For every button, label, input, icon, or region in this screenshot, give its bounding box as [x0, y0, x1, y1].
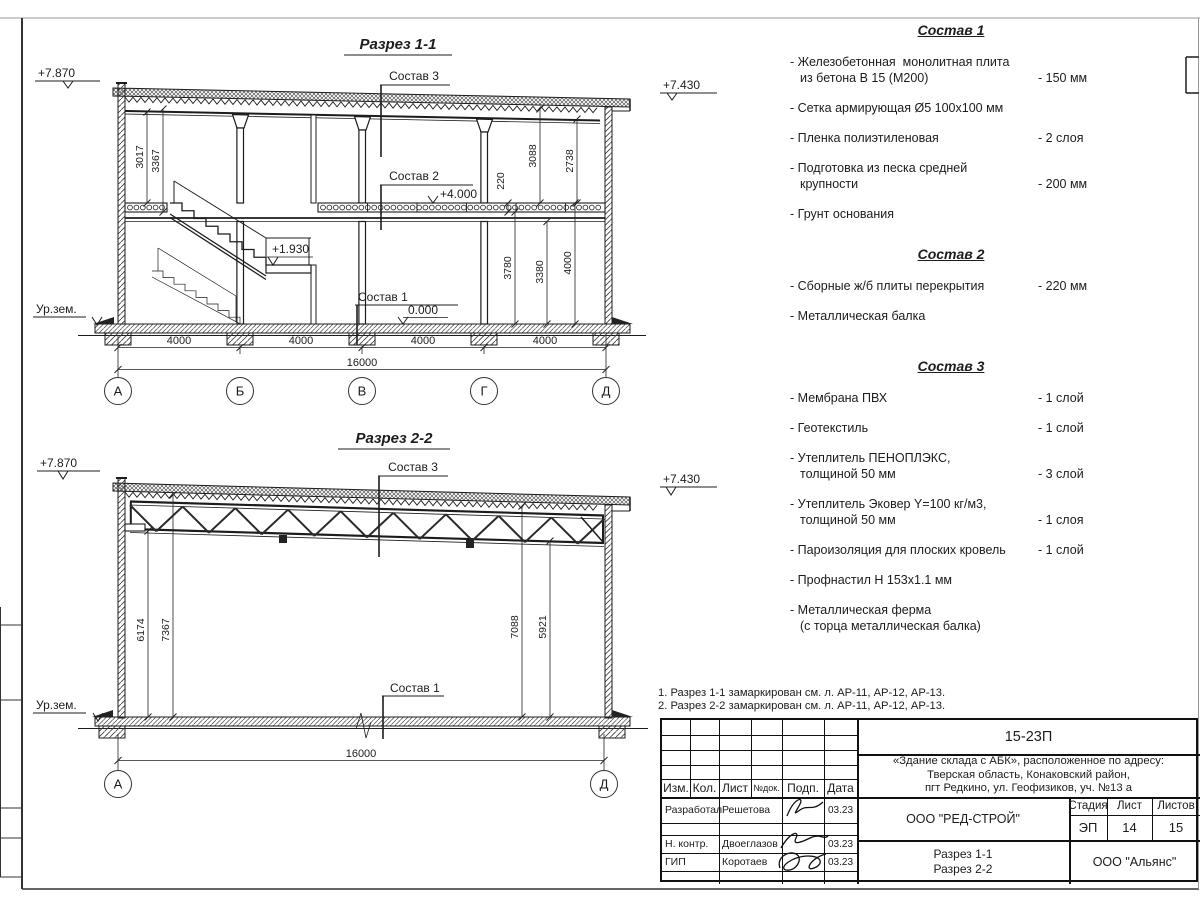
svg-text:4000: 4000 [411, 335, 435, 347]
col-data: Дата [824, 779, 857, 797]
list-item: - Подготовка из песка средней крупности-… [790, 160, 1112, 192]
svg-text:+7.870: +7.870 [38, 66, 75, 80]
svg-text:Состав 3: Состав 3 [388, 460, 438, 474]
left-margin-table [0, 607, 22, 877]
composition-list-1: Состав 1 - Железобетонная монолитная пли… [790, 22, 1112, 236]
svg-text:7367: 7367 [160, 618, 172, 642]
svg-text:220: 220 [495, 172, 507, 190]
svg-text:3088: 3088 [527, 144, 539, 168]
notes: 1. Разрез 1-1 замаркирован см. л. АР-11,… [658, 687, 945, 713]
svg-text:Состав 1: Состав 1 [390, 681, 440, 695]
title-block: Изм. Кол. Лист №док. Подп. Дата Разработ… [660, 718, 1198, 882]
steel-truss [125, 502, 604, 549]
row-date: 03.23 [824, 797, 857, 823]
signature [774, 844, 830, 878]
svg-text:+4.000: +4.000 [440, 187, 477, 201]
row-name: Двоеглазов [722, 835, 782, 853]
object-address: «Здание склада с АБК», расположенное по … [857, 754, 1200, 797]
sheets-label: Листов [1152, 797, 1200, 815]
ground-level-label: Ур.зем. [33, 302, 102, 325]
col-ndok: №док. [751, 779, 782, 797]
list-item: - Мембрана ПВХ- 1 слой [790, 390, 1112, 406]
ground-level-label-2: Ур.зем. [33, 698, 103, 721]
elevation-left: +7.870 [35, 66, 100, 88]
list-item: - Железобетонная монолитная плита из бет… [790, 54, 1112, 86]
svg-text:+7.870: +7.870 [40, 456, 77, 470]
composition-list-3: Состав 3 - Мембрана ПВХ- 1 слой - Геотек… [790, 358, 1112, 648]
list-item: - Сборные ж/б плиты перекрытия- 220 мм [790, 278, 1112, 294]
list-item: - Грунт основания [790, 206, 1112, 222]
row-role: Н. контр. [665, 835, 719, 853]
sheets-total: 15 [1152, 815, 1200, 840]
list-item: - Геотекстиль- 1 слой [790, 420, 1112, 436]
svg-text:Ур.зем.: Ур.зем. [36, 698, 77, 712]
svg-text:+7.430: +7.430 [663, 78, 700, 92]
col-kol: Кол. [690, 779, 719, 797]
list-item: - Утеплитель Эковер Y=100 кг/м3, толщино… [790, 496, 1112, 528]
svg-text:Состав 1: Состав 1 [358, 290, 408, 304]
elevation-right-2: +7.430 [660, 472, 717, 495]
svg-text:3017: 3017 [134, 145, 146, 169]
elevation-left-2: +7.870 [37, 456, 100, 479]
list-item: - Профнастил Н 153х1.1 мм [790, 572, 1112, 588]
corner-stamp-box [1186, 57, 1199, 93]
section2-axis-bubbles: А Д [105, 771, 618, 798]
svg-text:А: А [114, 384, 123, 399]
svg-text:Г: Г [480, 384, 487, 399]
sheet-number: 14 [1107, 815, 1152, 840]
svg-text:4000: 4000 [562, 251, 574, 275]
drawing-titles: Разрез 1-1 Разрез 2-2 [857, 840, 1069, 884]
svg-text:+1.930: +1.930 [272, 242, 309, 256]
svg-text:7088: 7088 [509, 615, 521, 639]
composition-list-2: Состав 2 - Сборные ж/б плиты перекрытия-… [790, 246, 1112, 338]
svg-text:16000: 16000 [346, 748, 377, 760]
callout-sostav2: Состав 2 +4.000 [380, 169, 477, 230]
staircase [152, 115, 316, 324]
row-role: ГИП [665, 853, 719, 871]
svg-text:3380: 3380 [534, 260, 546, 284]
list-item: - Утеплитель ПЕНОПЛЭКС, толщиной 50 мм- … [790, 450, 1112, 482]
svg-text:5921: 5921 [537, 615, 549, 639]
svg-text:16000: 16000 [347, 357, 378, 369]
svg-text:2738: 2738 [564, 149, 576, 173]
svg-text:4000: 4000 [533, 335, 557, 347]
list-item: - Пароизоляция для плоских кровель- 1 сл… [790, 542, 1112, 558]
row-name: Коротаев [722, 853, 782, 871]
elevation-right: +7.430 [660, 78, 717, 100]
composition-2-title: Состав 2 [790, 246, 1112, 262]
section-1-1-drawing: Разрез 1-1 [33, 36, 717, 405]
svg-text:Д: Д [600, 777, 609, 792]
svg-text:Состав 3: Состав 3 [389, 69, 439, 83]
list-item: - Пленка полиэтиленовая- 2 слоя [790, 130, 1112, 146]
svg-text:Б: Б [236, 384, 245, 399]
row-role: Разработал [665, 797, 719, 823]
stage-value: ЭП [1069, 815, 1107, 840]
callout-sostav3: Состав 3 [380, 69, 450, 157]
callout-sostav1-2: Состав 1 [382, 681, 444, 739]
list-item: - Сетка армирующая Ø5 100х100 мм [790, 100, 1112, 116]
signature [784, 794, 826, 822]
section2-dimensions [148, 495, 550, 717]
col-izm: Изм. [662, 779, 690, 797]
svg-text:3367: 3367 [150, 149, 162, 173]
svg-text:В: В [358, 384, 367, 399]
section2-title: Разрез 2-2 [355, 430, 433, 447]
list-item: - Металлическая ферма (с торца металличе… [790, 602, 1112, 634]
svg-text:+7.430: +7.430 [663, 472, 700, 486]
stage-label: Стадия [1069, 797, 1107, 815]
section1-axis-bubbles: А Б В Г Д [105, 378, 620, 405]
list-item: - Металлическая балка [790, 308, 1112, 324]
design-company: ООО "РЕД-СТРОЙ" [857, 797, 1069, 840]
doc-number: 15-23П [857, 720, 1200, 754]
section-2-2-drawing: Разрез 2-2 [33, 430, 717, 798]
contractor: ООО "Альянс" [1069, 840, 1200, 884]
section1-title: Разрез 1-1 [359, 36, 436, 53]
svg-text:3780: 3780 [502, 256, 514, 280]
svg-text:0.000: 0.000 [408, 303, 438, 317]
sheet-label: Лист [1107, 797, 1152, 815]
landing-elevation: +1.930 [267, 242, 313, 265]
svg-text:4000: 4000 [167, 335, 191, 347]
svg-text:Д: Д [602, 384, 611, 399]
drawing-sheet: Разрез 1-1 [0, 0, 1200, 900]
row-name: Решетова [722, 797, 782, 823]
svg-text:Ур.зем.: Ур.зем. [36, 302, 77, 316]
svg-text:Состав 2: Состав 2 [389, 169, 439, 183]
col-list: Лист [719, 779, 751, 797]
svg-text:А: А [114, 777, 123, 792]
svg-text:4000: 4000 [289, 335, 313, 347]
composition-3-title: Состав 3 [790, 358, 1112, 374]
svg-text:6174: 6174 [135, 618, 147, 642]
composition-1-title: Состав 1 [790, 22, 1112, 38]
